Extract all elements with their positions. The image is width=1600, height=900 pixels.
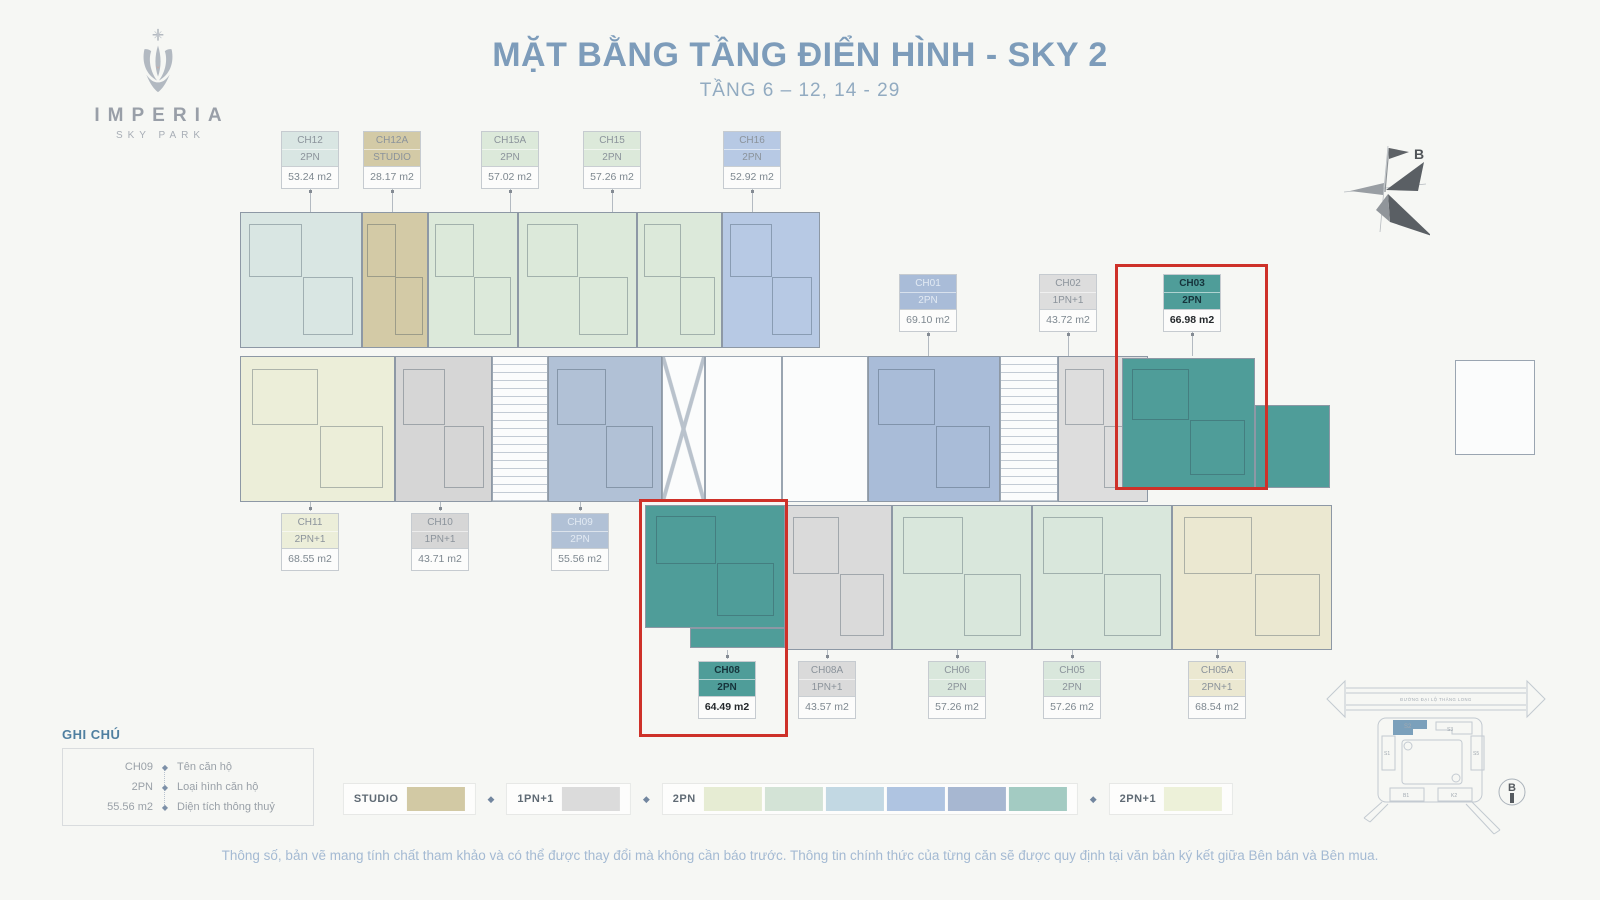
- label-connector-line: [752, 189, 753, 212]
- diamond-bullet-icon: ◆: [153, 803, 177, 812]
- unit-label-header: CH052PN: [1044, 662, 1100, 696]
- label-connector-line: [510, 189, 511, 212]
- unit-area: 68.55 m2: [282, 548, 338, 570]
- notes-row: CH09 ◆ Tên căn hộ: [75, 757, 301, 777]
- unit-label-ch11: CH112PN+168.55 m2: [281, 513, 339, 571]
- plan-unit-mid: [637, 212, 722, 348]
- connector-dot-icon: [309, 190, 312, 193]
- corridor-core: [782, 356, 868, 502]
- unit-type: 2PN: [1164, 292, 1220, 309]
- legend-swatches: [1164, 787, 1222, 811]
- unit-label-header: CH032PN: [1164, 275, 1220, 309]
- legend-color-swatch: [1009, 787, 1067, 811]
- plan-unit-ch12a: [362, 212, 428, 348]
- unit-area: 43.57 m2: [799, 696, 855, 718]
- unit-id: CH02: [1040, 275, 1096, 292]
- label-connector-line: [580, 502, 581, 511]
- notes-value: Tên căn hộ: [177, 761, 232, 773]
- unit-label-header: CH05A2PN+1: [1189, 662, 1245, 696]
- unit-type: 2PN+1: [1189, 679, 1245, 696]
- label-connector-line: [310, 502, 311, 511]
- unit-label-ch02: CH021PN+143.72 m2: [1039, 274, 1097, 332]
- unit-type: STUDIO: [364, 149, 420, 166]
- legend-separator-diamond-icon: ◆: [643, 794, 650, 805]
- plan-unit-ch10: [395, 356, 492, 502]
- unit-type: 1PN+1: [412, 531, 468, 548]
- connector-dot-icon: [826, 655, 829, 658]
- unit-label-ch05a: CH05A2PN+168.54 m2: [1188, 661, 1246, 719]
- unit-id: CH15: [584, 132, 640, 149]
- plan-unit-ch11: [240, 356, 395, 502]
- unit-id: CH03: [1164, 275, 1220, 292]
- site-road-label: ĐƯỜNG ĐẠI LỘ THĂNG LONG: [1400, 697, 1472, 702]
- label-connector-line: [957, 650, 958, 659]
- site-building-b1-label: B1: [1403, 793, 1409, 799]
- plan-unit-ch16: [722, 212, 820, 348]
- unit-label-header: CH062PN: [929, 662, 985, 696]
- unit-area: 57.26 m2: [584, 166, 640, 188]
- unit-label-header: CH12ASTUDIO: [364, 132, 420, 166]
- connector-dot-icon: [309, 507, 312, 510]
- unit-label-header: CH082PN: [699, 662, 755, 696]
- unit-label-header: CH112PN+1: [282, 514, 338, 548]
- label-connector-line: [1072, 650, 1073, 659]
- site-north-needle-icon: [1510, 793, 1514, 803]
- connector-dot-icon: [956, 655, 959, 658]
- floorplan-page: IMPERIA SKY PARK MẶT BẰNG TẦNG ĐIỂN HÌNH…: [0, 0, 1600, 900]
- unit-type: 2PN: [552, 531, 608, 548]
- unit-area: 28.17 m2: [364, 166, 420, 188]
- legend-item-2pn: 2PN: [662, 783, 1078, 815]
- legend-item-2pn-1: 2PN+1: [1109, 783, 1233, 815]
- notes-value: Diện tích thông thuỷ: [177, 801, 275, 813]
- plan-unit-ch05: [1032, 505, 1172, 650]
- legend-color-swatch: [406, 787, 464, 811]
- unit-id: CH15A: [482, 132, 538, 149]
- unit-type: 2PN: [282, 149, 338, 166]
- notes-row: 2PN ◆ Loại hình căn hộ: [75, 777, 301, 797]
- diamond-bullet-icon: ◆: [153, 783, 177, 792]
- unit-area: 57.26 m2: [1044, 696, 1100, 718]
- legend-swatches: [406, 787, 464, 811]
- unit-id: CH11: [282, 514, 338, 531]
- type-legend: STUDIO◆1PN+1◆2PN◆2PN+1: [343, 783, 1233, 815]
- legend-item-label: 2PN: [673, 793, 696, 805]
- unit-area: 43.71 m2: [412, 548, 468, 570]
- plan-unit-ch06: [892, 505, 1032, 650]
- notes-value: Loại hình căn hộ: [177, 781, 258, 793]
- legend-color-swatch: [887, 787, 945, 811]
- unit-label-ch08: CH082PN64.49 m2: [698, 661, 756, 719]
- unit-type: 2PN: [900, 292, 956, 309]
- unit-label-ch15: CH152PN57.26 m2: [583, 131, 641, 189]
- site-building-s2-label: S2: [1404, 724, 1412, 730]
- label-connector-line: [1068, 332, 1069, 356]
- notes-legend: CH09 ◆ Tên căn hộ 2PN ◆ Loại hình căn hộ…: [62, 748, 314, 826]
- unit-area: 55.56 m2: [552, 548, 608, 570]
- unit-label-header: CH162PN: [724, 132, 780, 166]
- unit-label-header: CH101PN+1: [412, 514, 468, 548]
- diamond-bullet-icon: ◆: [153, 763, 177, 772]
- connector-dot-icon: [1071, 655, 1074, 658]
- legend-item-label: 1PN+1: [517, 793, 553, 805]
- unit-id: CH08A: [799, 662, 855, 679]
- unit-label-ch10: CH101PN+143.71 m2: [411, 513, 469, 571]
- legend-color-swatch: [562, 787, 620, 811]
- stairwell-east: [1000, 356, 1058, 502]
- unit-type: 2PN: [482, 149, 538, 166]
- unit-id: CH05A: [1189, 662, 1245, 679]
- legend-swatches: [704, 787, 1067, 811]
- legend-item-1pn-1: 1PN+1: [506, 783, 630, 815]
- connector-dot-icon: [439, 507, 442, 510]
- label-connector-line: [392, 189, 393, 212]
- unit-id: CH08: [699, 662, 755, 679]
- label-connector-line: [612, 189, 613, 212]
- unit-label-header: CH08A1PN+1: [799, 662, 855, 696]
- unit-id: CH05: [1044, 662, 1100, 679]
- unit-id: CH09: [552, 514, 608, 531]
- legend-color-swatch: [704, 787, 762, 811]
- legend-color-swatch: [948, 787, 1006, 811]
- site-map: S2 S3 S1 S5 B1 K2 ĐƯỜNG ĐẠI LỘ THĂNG LON…: [1290, 652, 1595, 847]
- plan-unit-ch01: [868, 356, 1000, 502]
- legend-item-studio: STUDIO: [343, 783, 476, 815]
- stairwell-west: [492, 356, 548, 502]
- notes-legend-title: GHI CHÚ: [62, 727, 120, 742]
- unit-label-ch01: CH012PN69.10 m2: [899, 274, 957, 332]
- disclaimer-text: Thông số, bản vẽ mang tính chất tham khả…: [0, 848, 1600, 863]
- plan-unit-ch12: [240, 212, 362, 348]
- unit-area: 66.98 m2: [1164, 309, 1220, 331]
- unit-id: CH10: [412, 514, 468, 531]
- unit-label-header: CH092PN: [552, 514, 608, 548]
- notes-key: 55.56 m2: [75, 801, 153, 813]
- detached-structure: [1455, 360, 1535, 455]
- plan-unit-ch05a: [1172, 505, 1332, 650]
- unit-area: 57.26 m2: [929, 696, 985, 718]
- unit-label-ch12a: CH12ASTUDIO28.17 m2: [363, 131, 421, 189]
- unit-label-ch15a: CH15A2PN57.02 m2: [481, 131, 539, 189]
- unit-label-header: CH15A2PN: [482, 132, 538, 166]
- label-connector-line: [827, 650, 828, 659]
- unit-area: 64.49 m2: [699, 696, 755, 718]
- label-connector-line: [440, 502, 441, 511]
- unit-type: 2PN+1: [282, 531, 338, 548]
- unit-label-header: CH012PN: [900, 275, 956, 309]
- unit-label-ch09: CH092PN55.56 m2: [551, 513, 609, 571]
- unit-type: 2PN: [1044, 679, 1100, 696]
- connector-dot-icon: [927, 333, 930, 336]
- legend-separator-diamond-icon: ◆: [487, 794, 494, 805]
- unit-area: 69.10 m2: [900, 309, 956, 331]
- unit-id: CH01: [900, 275, 956, 292]
- legend-color-swatch: [1164, 787, 1222, 811]
- unit-type: 2PN: [724, 149, 780, 166]
- connector-dot-icon: [611, 190, 614, 193]
- unit-id: CH06: [929, 662, 985, 679]
- unit-id: CH16: [724, 132, 780, 149]
- legend-separator-diamond-icon: ◆: [1090, 794, 1097, 805]
- unit-area: 43.72 m2: [1040, 309, 1096, 331]
- unit-label-header: CH122PN: [282, 132, 338, 166]
- site-building-s3-label: S3: [1447, 727, 1453, 733]
- unit-label-ch08a: CH08A1PN+143.57 m2: [798, 661, 856, 719]
- elevator-core: [662, 356, 705, 502]
- unit-label-header: CH021PN+1: [1040, 275, 1096, 309]
- legend-color-swatch: [826, 787, 884, 811]
- unit-id: CH12: [282, 132, 338, 149]
- notes-row: 55.56 m2 ◆ Diện tích thông thuỷ: [75, 797, 301, 817]
- unit-area: 52.92 m2: [724, 166, 780, 188]
- unit-label-ch06: CH062PN57.26 m2: [928, 661, 986, 719]
- connector-dot-icon: [1216, 655, 1219, 658]
- unit-label-ch05: CH052PN57.26 m2: [1043, 661, 1101, 719]
- unit-label-ch03: CH032PN66.98 m2: [1163, 274, 1221, 332]
- unit-type: 2PN: [929, 679, 985, 696]
- legend-item-label: 2PN+1: [1120, 793, 1156, 805]
- plan-unit-ch15a: [428, 212, 518, 348]
- connector-dot-icon: [1067, 333, 1070, 336]
- legend-item-label: STUDIO: [354, 793, 399, 805]
- unit-type: 1PN+1: [1040, 292, 1096, 309]
- unit-label-header: CH152PN: [584, 132, 640, 166]
- unit-area: 68.54 m2: [1189, 696, 1245, 718]
- plan-unit-ch15: [518, 212, 637, 348]
- unit-type: 2PN: [699, 679, 755, 696]
- connector-dot-icon: [751, 190, 754, 193]
- site-building-s5-label: S5: [1473, 751, 1479, 757]
- plan-unit-ch09: [548, 356, 662, 502]
- connector-dot-icon: [509, 190, 512, 193]
- label-connector-line: [928, 332, 929, 356]
- notes-key: CH09: [75, 761, 153, 773]
- site-building-k2-label: K2: [1451, 793, 1457, 799]
- unit-type: 1PN+1: [799, 679, 855, 696]
- unit-id: CH12A: [364, 132, 420, 149]
- unit-area: 57.02 m2: [482, 166, 538, 188]
- notes-key: 2PN: [75, 781, 153, 793]
- unit-label-ch16: CH162PN52.92 m2: [723, 131, 781, 189]
- label-connector-line: [1217, 650, 1218, 659]
- site-building-s1-label: S1: [1384, 751, 1390, 757]
- unit-area: 53.24 m2: [282, 166, 338, 188]
- plan-unit-ch08a: [785, 505, 892, 650]
- connector-dot-icon: [579, 507, 582, 510]
- connector-dot-icon: [391, 190, 394, 193]
- site-north-label: B: [1508, 782, 1516, 794]
- legend-swatches: [562, 787, 620, 811]
- utility-core: [705, 356, 782, 502]
- unit-type: 2PN: [584, 149, 640, 166]
- label-connector-line: [310, 189, 311, 212]
- unit-label-ch12: CH122PN53.24 m2: [281, 131, 339, 189]
- legend-color-swatch: [765, 787, 823, 811]
